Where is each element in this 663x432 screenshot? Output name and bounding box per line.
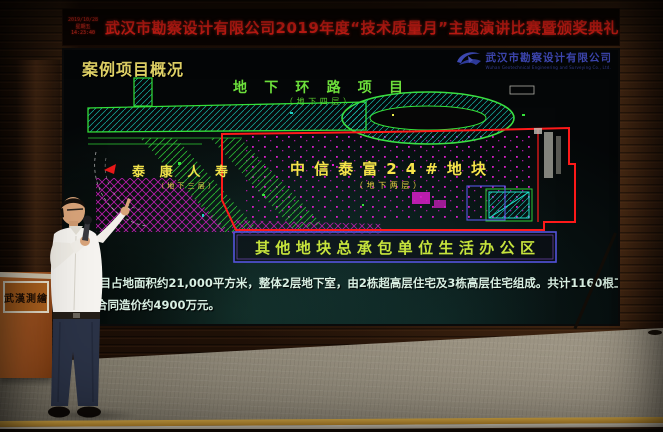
presentation-screen: 案例项目概况 武汉市勘察设计有限公司 Wuhan Geotechnical En… (62, 48, 620, 326)
auditorium-photo: 2019/10/28 星期五 14:23:40 武汉市勘察设计有限公司2019年… (0, 0, 663, 432)
ring-road-stub (134, 78, 152, 106)
company-name-cn: 武汉市勘察设计有限公司 (486, 50, 613, 65)
presenter (40, 192, 140, 422)
presenter-shirt (51, 227, 102, 312)
gray-structure-2 (556, 136, 561, 174)
company-name-en: Wuhan Geotechnical Engineering and Surve… (486, 65, 613, 70)
project-description-line1: 项目占地面积约21,000平方米，整体2层地下室，由2栋超高层住宅及3栋高层住宅… (88, 275, 620, 291)
led-ticker-banner: 2019/10/28 星期五 14:23:40 武汉市勘察设计有限公司2019年… (62, 8, 620, 46)
presenter-glasses (67, 209, 83, 210)
presenter-left-shoe (48, 407, 70, 418)
ring-road-label: 地下环路项目 (233, 79, 403, 96)
gray-structure-1 (544, 132, 553, 178)
gray-structure-3 (534, 128, 542, 134)
led-datetime: 2019/10/28 星期五 14:23:40 (67, 17, 99, 37)
led-date: 2019/10/28 (67, 17, 99, 24)
presenter-hand (121, 207, 130, 216)
company-logo: 武汉市勘察设计有限公司 Wuhan Geotechnical Engineeri… (456, 50, 613, 70)
tripod-base (648, 330, 662, 335)
magenta-block-1 (412, 192, 430, 204)
company-logo-icon (456, 50, 482, 68)
top-structure-outline (510, 86, 534, 94)
presenter-right-shoe (77, 407, 101, 418)
citic-label: 中信泰富24#地块 (290, 160, 487, 178)
cad-site-plan: 地下环路项目 （地下四层） 泰康人寿 （地下三层） 中信泰富24#地块 （地下两… (82, 74, 604, 270)
presenter-belt-buckle (73, 313, 80, 318)
led-time: 14:23:40 (67, 30, 99, 37)
ring-road-loop-inner (370, 106, 486, 130)
microphone-head (83, 216, 92, 225)
ring-road-band (88, 102, 366, 132)
magenta-block-2 (434, 200, 446, 208)
led-banner-title: 武汉市勘察设计有限公司2019年度“技术质量月”主题演讲比赛暨颁奖典礼 (105, 17, 619, 38)
